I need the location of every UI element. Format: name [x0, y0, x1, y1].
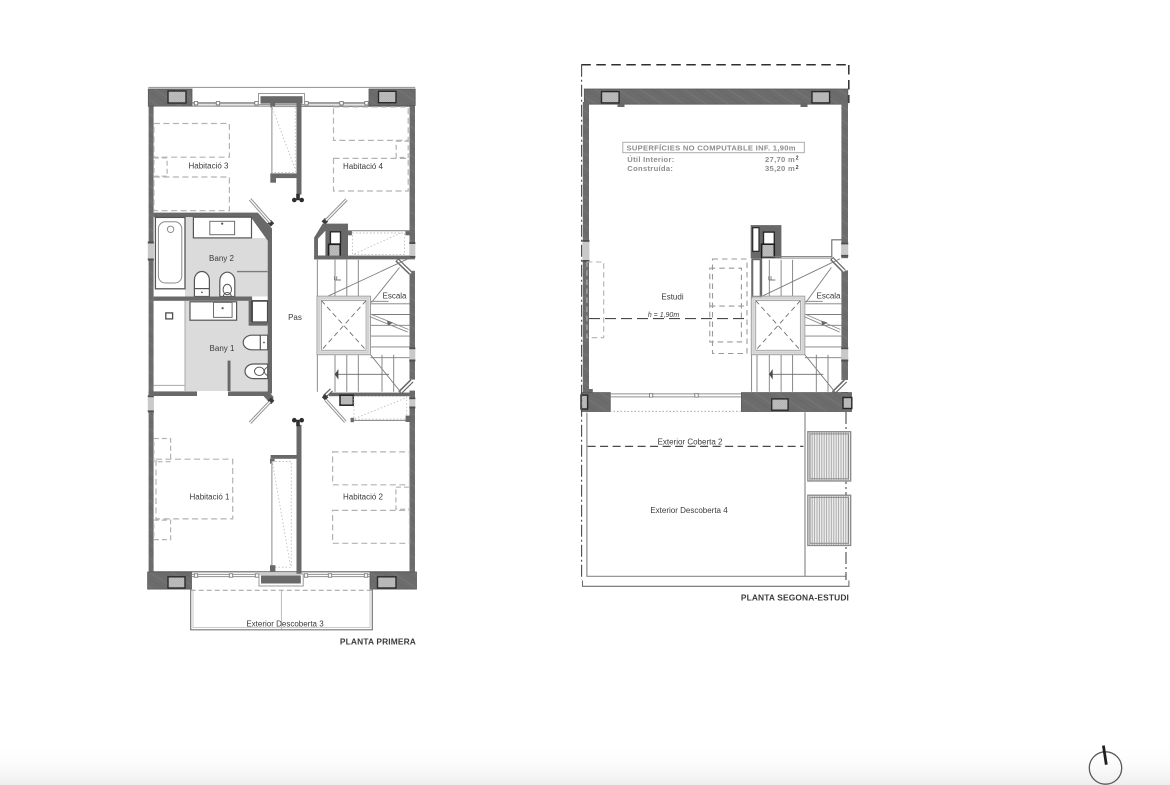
svg-text:Construída:: Construída: — [627, 164, 673, 173]
svg-text:Exterior Coberta 2: Exterior Coberta 2 — [658, 438, 723, 447]
svg-text:Habitació 1: Habitació 1 — [189, 493, 230, 502]
svg-text:Habitació 3: Habitació 3 — [188, 161, 229, 170]
svg-text:Pas: Pas — [288, 313, 302, 322]
svg-text:PLANTA SEGONA-ESTUDI: PLANTA SEGONA-ESTUDI — [741, 593, 849, 603]
svg-text:Bany 1: Bany 1 — [210, 344, 235, 353]
svg-text:2: 2 — [796, 165, 799, 171]
svg-text:27,70 m: 27,70 m — [765, 155, 795, 164]
svg-text:PLANTA PRIMERA: PLANTA PRIMERA — [340, 637, 416, 647]
svg-text:SUPERFÍCIES NO COMPUTABLE INF.: SUPERFÍCIES NO COMPUTABLE INF. 1,90m — [627, 143, 796, 152]
svg-text:Bany 2: Bany 2 — [209, 254, 234, 263]
svg-text:Escala: Escala — [816, 291, 841, 300]
svg-text:Habitació 2: Habitació 2 — [343, 493, 384, 502]
svg-text:Escala: Escala — [382, 291, 407, 300]
svg-text:Útil Interior:: Útil Interior: — [627, 155, 674, 164]
svg-text:Exterior Descoberta 4: Exterior Descoberta 4 — [650, 506, 728, 515]
svg-text:35,20 m: 35,20 m — [765, 164, 795, 173]
svg-text:2: 2 — [796, 155, 799, 161]
svg-text:Habitació 4: Habitació 4 — [343, 162, 384, 171]
svg-text:Exterior Descoberta 3: Exterior Descoberta 3 — [246, 620, 324, 629]
svg-text:h = 1,90m: h = 1,90m — [648, 312, 679, 319]
svg-text:Estudi: Estudi — [661, 293, 683, 302]
